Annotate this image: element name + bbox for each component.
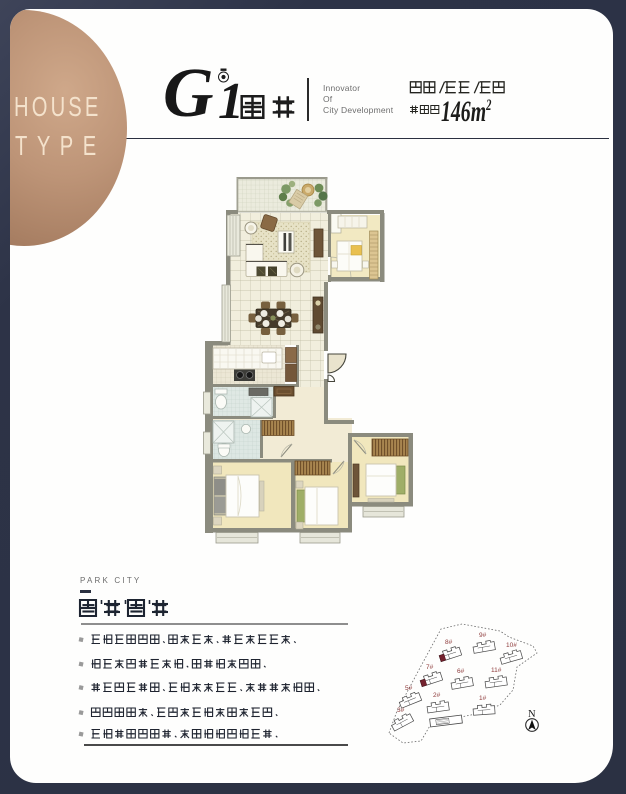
svg-text:5#: 5# <box>405 685 413 692</box>
svg-text:6#: 6# <box>457 668 465 675</box>
svg-text:11#: 11# <box>491 667 502 674</box>
svg-text:8#: 8# <box>445 639 453 646</box>
svg-text:1#: 1# <box>479 695 487 702</box>
svg-text:7#: 7# <box>426 664 434 671</box>
svg-text:10#: 10# <box>506 642 517 649</box>
svg-text:3#: 3# <box>397 707 405 714</box>
svg-text:9#: 9# <box>479 632 487 639</box>
svg-text:2#: 2# <box>433 692 441 699</box>
